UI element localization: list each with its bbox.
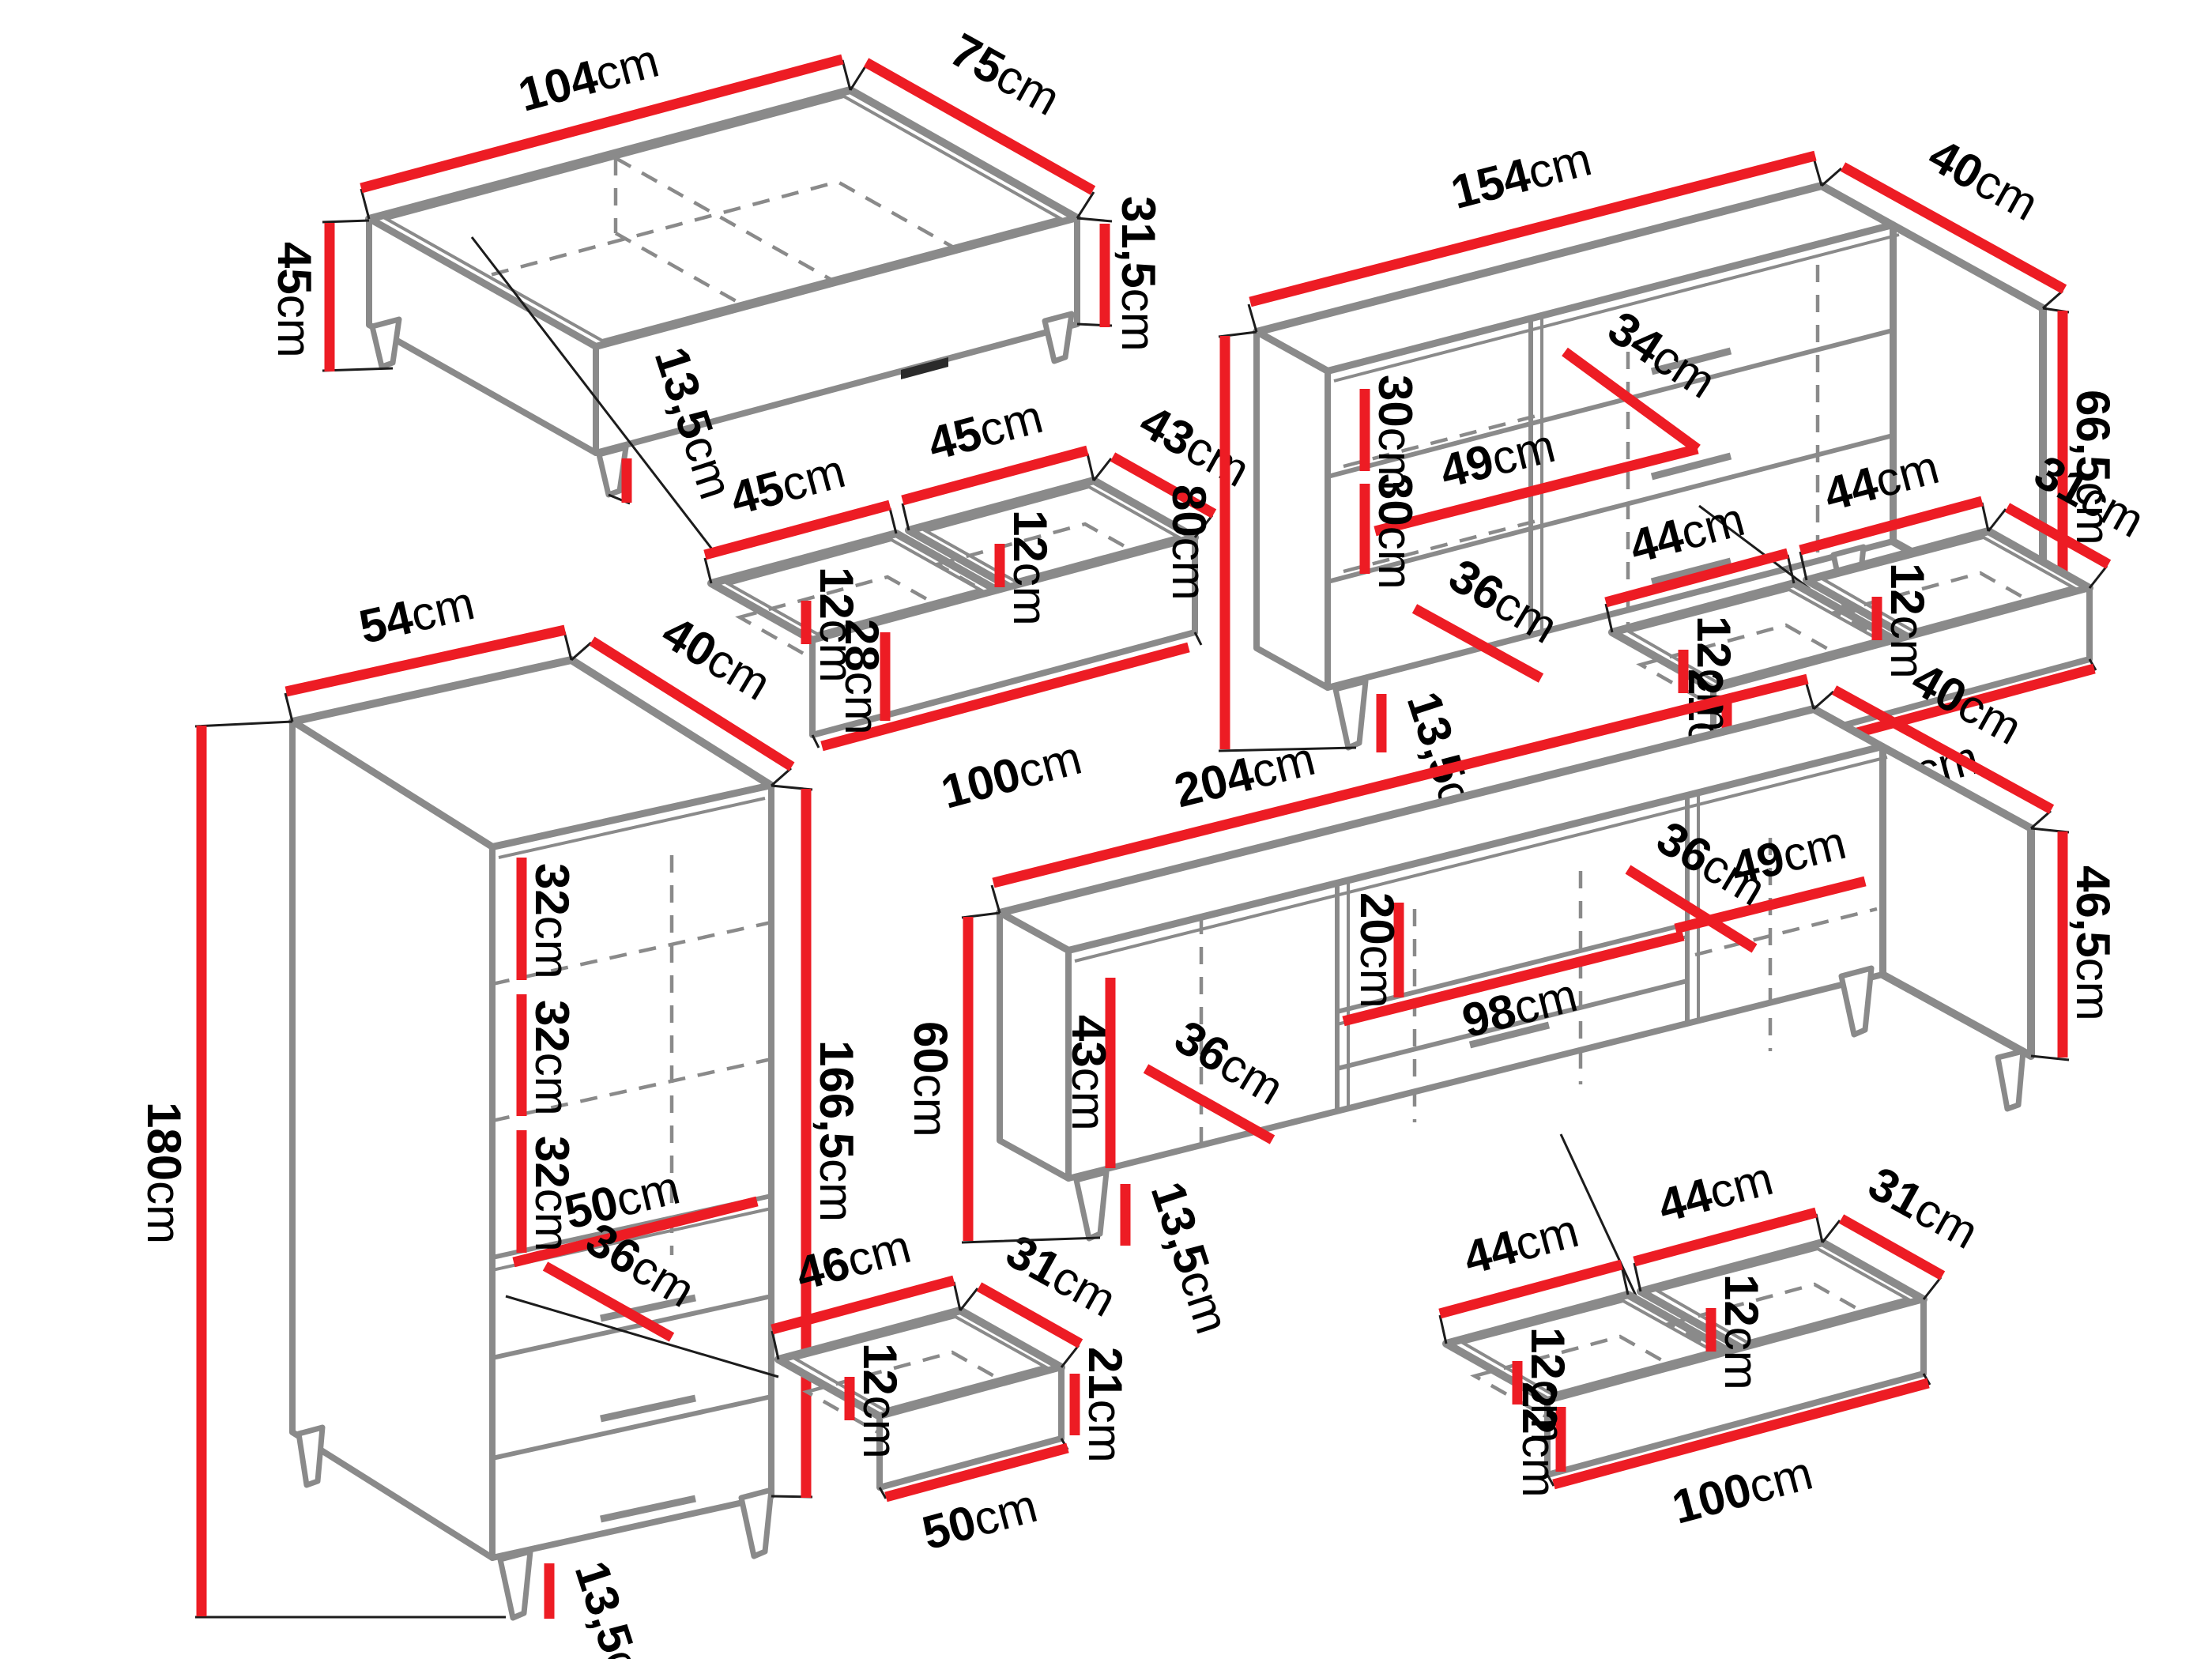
tvd-front-height-label: 22cm <box>1513 1382 1566 1498</box>
sb-left-face <box>1257 332 1328 688</box>
tv-body-height-label: 46,5cm <box>2067 865 2120 1021</box>
ctd-bottom-label: 100cm <box>936 731 1087 819</box>
ctd-i2-label: 12cm <box>1004 510 1057 626</box>
sb-shelf2-label: 30cm <box>1369 473 1422 590</box>
tvd-i2-label: 12cm <box>1715 1274 1768 1390</box>
tc-gap2-label: 32cm <box>526 1000 578 1116</box>
ctd-w2-label: 45cm <box>922 390 1048 471</box>
tc-gap1-label: 32cm <box>526 863 578 979</box>
diagram-canvas: 104cm 75cm 45cm 31,5cm 13,5cm 45cm 45cm … <box>0 0 2212 1659</box>
ctd-w1-label: 45cm <box>725 444 850 526</box>
sb-width-label: 154cm <box>1445 132 1596 219</box>
tv-stand-drawer: 44cm 44cm 31cm 12cm 12cm 22cm 100cm <box>1440 1134 1987 1534</box>
furniture-dimension-sheet: 104cm 75cm 45cm 31,5cm 13,5cm 45cm 45cm … <box>0 0 2212 1659</box>
sd-inner-label: 12cm <box>854 1343 906 1459</box>
tv-leg-label: 13,5cm <box>1141 1175 1240 1340</box>
tall-cabinet: 54cm 40cm 180cm 166,5cm 32cm 32cm 32cm 5… <box>138 576 863 1659</box>
tc-height-label: 180cm <box>138 1102 190 1244</box>
tvd-w2-label: 44cm <box>1652 1152 1778 1233</box>
ct-body-height-label: 31,5cm <box>1112 196 1165 352</box>
tc-leg-label: 13,5cm <box>565 1555 664 1659</box>
tvd-bottom-label: 100cm <box>1667 1446 1818 1534</box>
tv-right-face <box>1882 747 2031 1056</box>
tv-mid-label: 20cm <box>1351 892 1404 1009</box>
tv-left-face <box>1000 913 1068 1178</box>
sd-front-height-label: 21cm <box>1079 1347 1132 1463</box>
sb-height-label: 80cm <box>1163 485 1215 601</box>
tv-left-inner-label: 43cm <box>1062 1015 1115 1131</box>
sd-bottom-label: 50cm <box>917 1479 1042 1560</box>
ctd-front-height-label: 28cm <box>835 619 888 735</box>
tv-height-label: 60cm <box>904 1021 957 1137</box>
tvd-w1-label: 44cm <box>1458 1204 1584 1285</box>
tc-width-label: 54cm <box>354 576 479 654</box>
tc-body-height-label: 166,5cm <box>810 1040 863 1222</box>
ct-height-label: 45cm <box>268 242 321 358</box>
